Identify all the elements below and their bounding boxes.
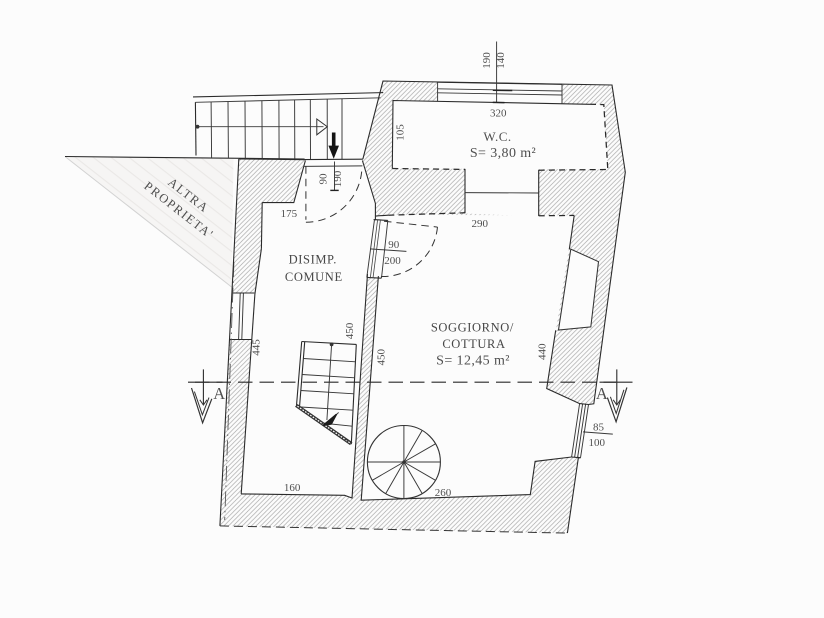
svg-text:COTTURA: COTTURA bbox=[442, 337, 505, 351]
svg-text:440: 440 bbox=[537, 343, 549, 360]
svg-text:90: 90 bbox=[388, 239, 400, 251]
svg-text:190: 190 bbox=[332, 170, 344, 187]
svg-text:105: 105 bbox=[395, 124, 407, 141]
svg-text:450: 450 bbox=[376, 349, 388, 366]
svg-text:200: 200 bbox=[384, 255, 401, 267]
svg-text:S= 3,80 m²: S= 3,80 m² bbox=[470, 146, 536, 161]
svg-text:445: 445 bbox=[251, 339, 263, 356]
svg-text:S= 12,45 m²: S= 12,45 m² bbox=[436, 354, 510, 369]
svg-text:260: 260 bbox=[435, 487, 452, 499]
svg-text:A: A bbox=[213, 384, 225, 403]
svg-text:190: 190 bbox=[481, 52, 493, 69]
svg-text:DISIMP.: DISIMP. bbox=[289, 253, 337, 267]
svg-text:320: 320 bbox=[490, 108, 507, 120]
svg-text:85: 85 bbox=[593, 422, 605, 434]
svg-text:450: 450 bbox=[344, 322, 356, 339]
svg-text:90: 90 bbox=[318, 173, 330, 185]
svg-text:100: 100 bbox=[589, 437, 606, 449]
svg-text:175: 175 bbox=[281, 208, 298, 220]
svg-text:290: 290 bbox=[472, 218, 489, 230]
svg-text:SOGGIORNO/: SOGGIORNO/ bbox=[431, 321, 514, 335]
svg-text:A: A bbox=[596, 384, 608, 403]
svg-text:160: 160 bbox=[284, 482, 301, 494]
svg-text:W.C.: W.C. bbox=[483, 129, 511, 144]
svg-text:COMUNE: COMUNE bbox=[285, 270, 343, 284]
